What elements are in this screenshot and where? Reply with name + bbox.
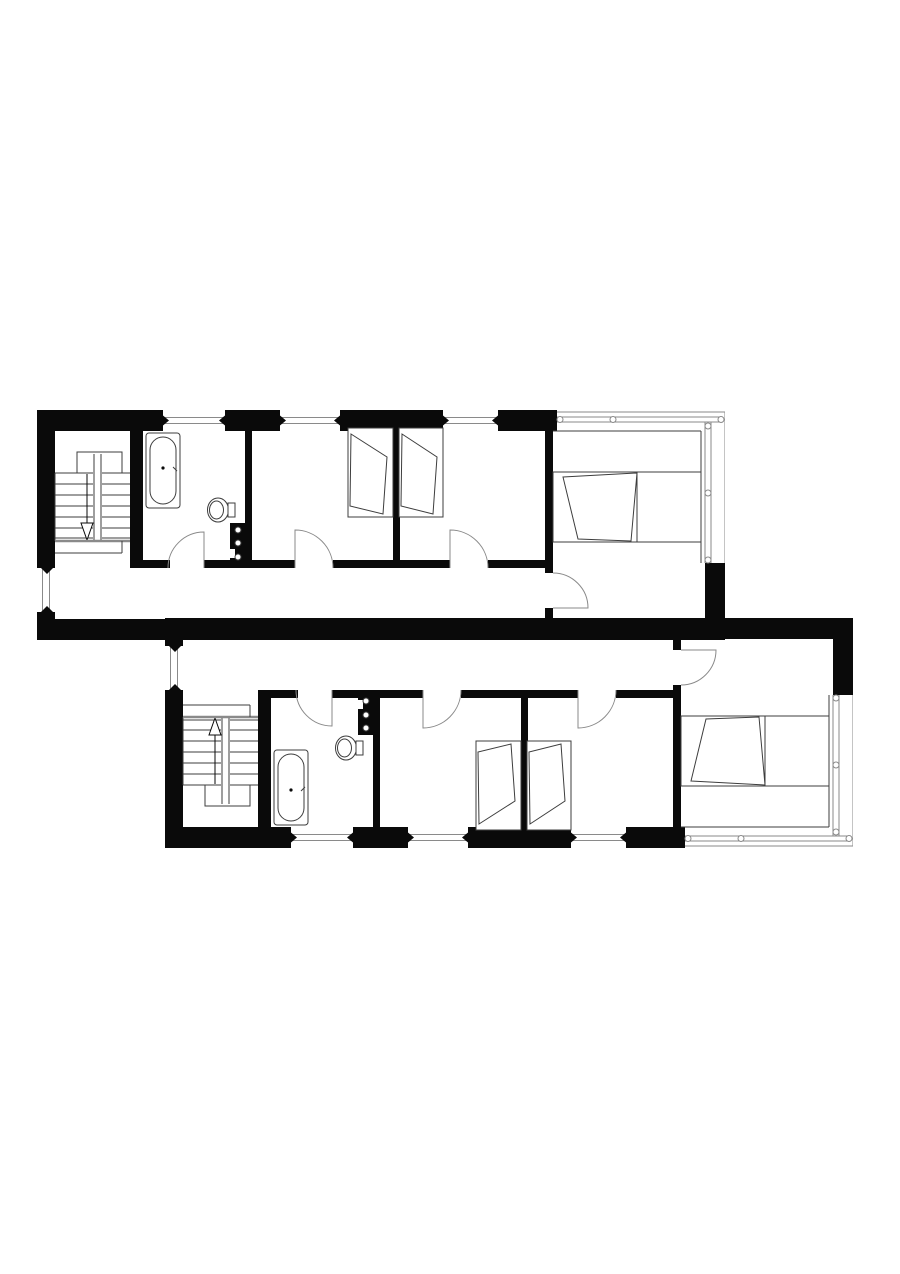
mullion-circle-6 bbox=[833, 695, 839, 701]
shaft-fitting-2 bbox=[363, 712, 369, 718]
mullion-circle-5 bbox=[705, 490, 711, 496]
toilet-cistern bbox=[228, 503, 235, 517]
top-wall-segment-2 bbox=[353, 827, 408, 848]
corridor-wall-seg-5 bbox=[400, 560, 450, 568]
corridor-wall-seg-6 bbox=[616, 690, 673, 698]
corridor-wall-seg-1 bbox=[130, 560, 170, 568]
door-swing-bathroom bbox=[168, 532, 204, 568]
corridor-wall-seg-1 bbox=[258, 690, 298, 698]
top-wall-segment-2 bbox=[225, 410, 280, 431]
lower-unit-floor-plan-drawing bbox=[165, 618, 853, 848]
corridor-wall-seg-4 bbox=[333, 560, 393, 568]
top-wall-segment-4 bbox=[626, 827, 685, 848]
mullion-circle-5 bbox=[833, 762, 839, 768]
window-top-1-opening bbox=[163, 410, 225, 431]
left-exterior-wall bbox=[165, 690, 183, 848]
wall-bedroom2-master bbox=[673, 685, 681, 827]
mullion-circle-2 bbox=[610, 417, 616, 423]
wall-stair-bathroom bbox=[130, 431, 143, 568]
mullion-circle-3 bbox=[718, 417, 724, 423]
corridor-wall-seg-6 bbox=[488, 560, 545, 568]
bathtub-drain bbox=[161, 466, 164, 469]
upper-unit-floor-plan-drawing bbox=[37, 410, 725, 640]
stair-direction-arrowhead bbox=[209, 718, 221, 735]
door-swing-bedroom2 bbox=[450, 530, 488, 568]
door-swing-bedroom2 bbox=[578, 690, 616, 728]
mullion-circle-4 bbox=[833, 829, 839, 835]
mullion-circle-3 bbox=[846, 836, 852, 842]
corridor-wall-seg-5 bbox=[528, 690, 578, 698]
corridor-wall-seg-3 bbox=[380, 690, 423, 698]
mullion-circle-6 bbox=[705, 557, 711, 563]
party-wall-band bbox=[165, 618, 853, 639]
wall-stair-bathroom bbox=[258, 690, 271, 827]
left-exterior-wall bbox=[37, 410, 55, 568]
corridor-wall-seg-4 bbox=[461, 690, 521, 698]
shaft-fitting-2 bbox=[235, 540, 241, 546]
door-swing-bedroom1 bbox=[295, 530, 333, 568]
shaft-fitting-1 bbox=[235, 527, 241, 533]
window-top-2-opening bbox=[280, 410, 340, 431]
right-exterior-wall-piece bbox=[833, 618, 853, 695]
mullion-circle-4 bbox=[705, 423, 711, 429]
floor-plan bbox=[0, 0, 900, 1274]
corridor-wall-seg-3 bbox=[252, 560, 295, 568]
shaft-fitting-1 bbox=[363, 725, 369, 731]
mullion-circle-2 bbox=[738, 836, 744, 842]
window-top-3-opening bbox=[443, 410, 498, 431]
shaft-notch bbox=[358, 700, 363, 709]
floor-plan-sheet bbox=[0, 0, 900, 1274]
bathtub-inner bbox=[278, 754, 304, 821]
door-swing-bathroom bbox=[296, 690, 332, 726]
toilet-seat bbox=[210, 501, 224, 519]
shaft-notch bbox=[230, 549, 235, 558]
mullion-circle-1 bbox=[557, 417, 563, 423]
top-wall-segment-4 bbox=[498, 410, 557, 431]
shaft-fitting-3 bbox=[235, 554, 241, 560]
window-left-opening bbox=[165, 646, 183, 690]
door-swing-bedroom1 bbox=[423, 690, 461, 728]
toilet-seat bbox=[338, 739, 352, 757]
bathtub-inner bbox=[150, 437, 176, 504]
door-swing-master bbox=[681, 650, 716, 685]
window-top-3-opening bbox=[571, 827, 626, 848]
upper-unit-floor-plan bbox=[37, 410, 725, 640]
stair-direction-arrowhead bbox=[81, 523, 93, 540]
window-top-1-opening bbox=[291, 827, 353, 848]
top-wall-segment-1 bbox=[165, 827, 291, 848]
bathtub-drain bbox=[289, 788, 292, 791]
lower-unit-floor-plan bbox=[165, 618, 853, 848]
toilet-cistern bbox=[356, 741, 363, 755]
mullion-circle-1 bbox=[685, 836, 691, 842]
top-wall-segment-1 bbox=[37, 410, 163, 431]
window-left-opening bbox=[37, 568, 55, 612]
window-top-2-opening bbox=[408, 827, 468, 848]
master-door-jamb bbox=[673, 639, 681, 650]
door-swing-master bbox=[553, 573, 588, 608]
shaft-fitting-3 bbox=[363, 698, 369, 704]
wall-bedroom2-master bbox=[545, 431, 553, 573]
